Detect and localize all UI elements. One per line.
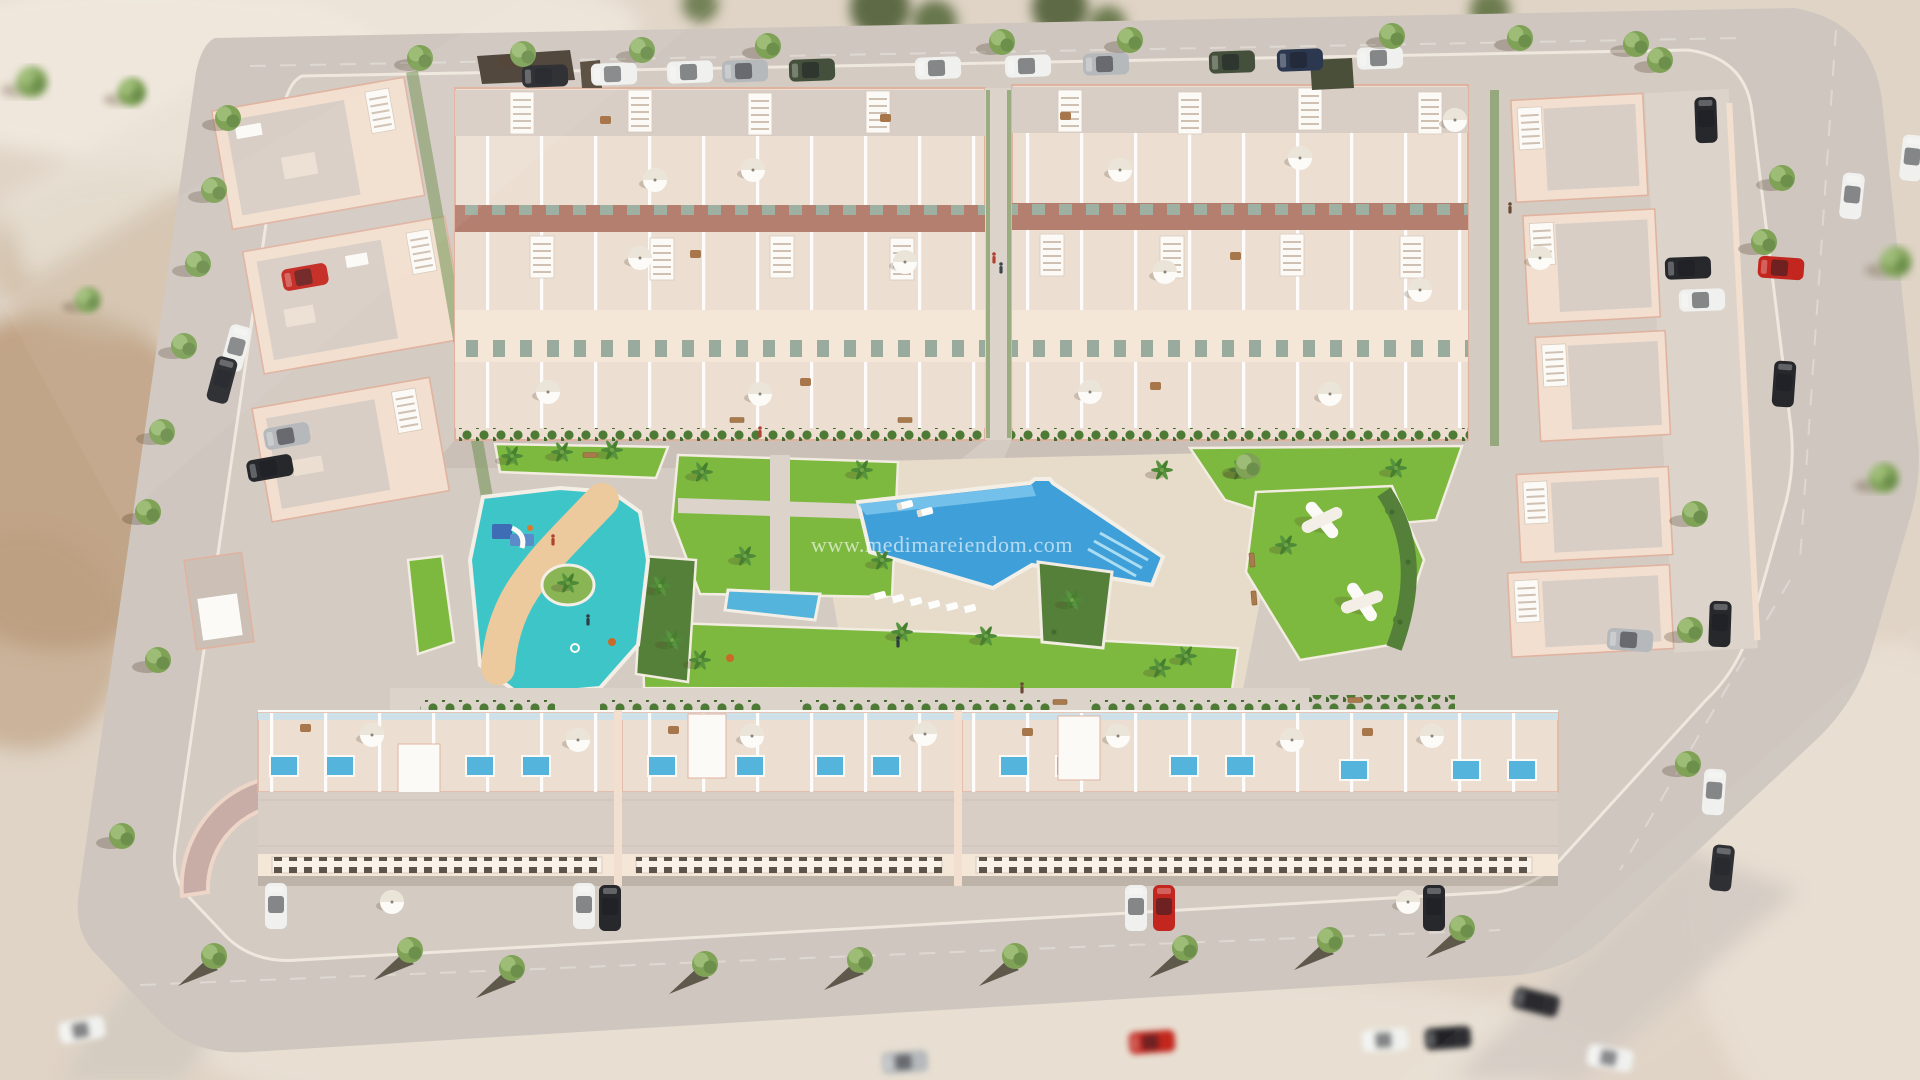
hedge-lane — [1490, 90, 1499, 446]
utility-building — [184, 552, 254, 649]
villa — [1516, 467, 1672, 563]
hedge-strip — [1305, 695, 1455, 709]
pedestrian — [1508, 202, 1512, 213]
hedge-strip — [1012, 428, 1468, 441]
flower-bush — [726, 654, 734, 662]
flower-bush — [608, 638, 616, 646]
parked-car — [1694, 97, 1718, 144]
pedestrian — [999, 262, 1003, 273]
bottom-row-centre — [622, 710, 955, 886]
hedge-strip — [455, 428, 985, 441]
bottom-row-west — [258, 710, 615, 914]
stair-tower — [1058, 716, 1100, 780]
kids-splash-pool — [470, 488, 648, 695]
aerial-render: www.medimareiendom.com — [0, 0, 1920, 1080]
park-path — [770, 455, 790, 600]
alley-wall — [614, 710, 622, 886]
villa — [1535, 331, 1670, 442]
villa — [1511, 93, 1648, 202]
aerial-render-page: www.medimareiendom.com — [0, 0, 1920, 1080]
parked-car — [1606, 627, 1653, 652]
lawn — [495, 444, 668, 478]
pedestrian-lane — [985, 88, 1012, 440]
bottom-row-east — [962, 710, 1558, 914]
pedestrian — [992, 252, 996, 263]
parked-car — [1679, 288, 1726, 312]
stair-tower — [688, 714, 726, 778]
palm-island — [542, 565, 594, 605]
townhouse-block-b — [1012, 85, 1468, 441]
watermark-text: www.medimareiendom.com — [811, 532, 1073, 557]
parked-car — [1665, 256, 1712, 280]
alley-wall — [954, 710, 962, 886]
